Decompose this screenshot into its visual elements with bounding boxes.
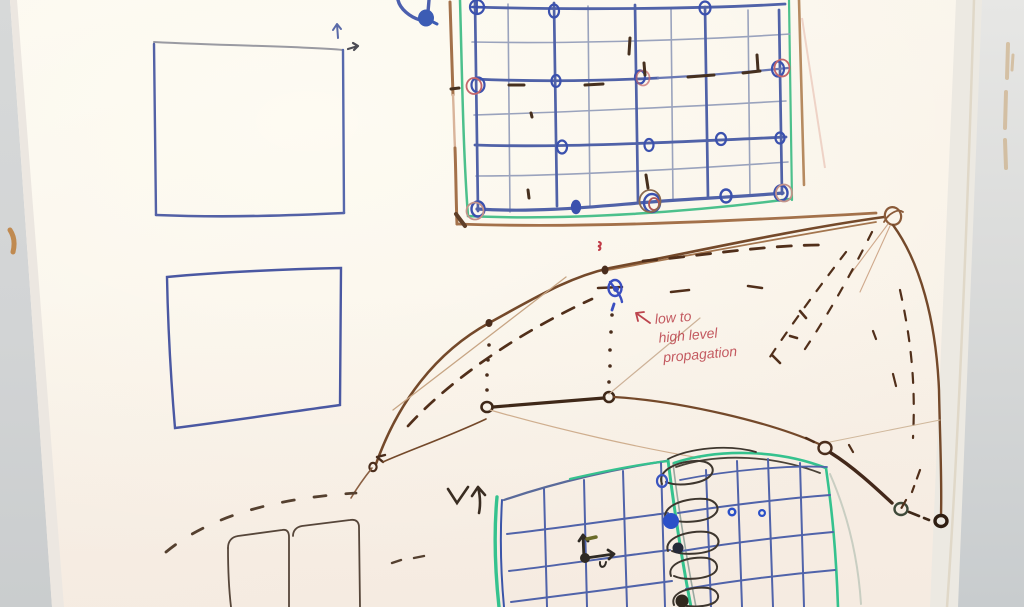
svg-text:low to: low to <box>654 308 692 327</box>
